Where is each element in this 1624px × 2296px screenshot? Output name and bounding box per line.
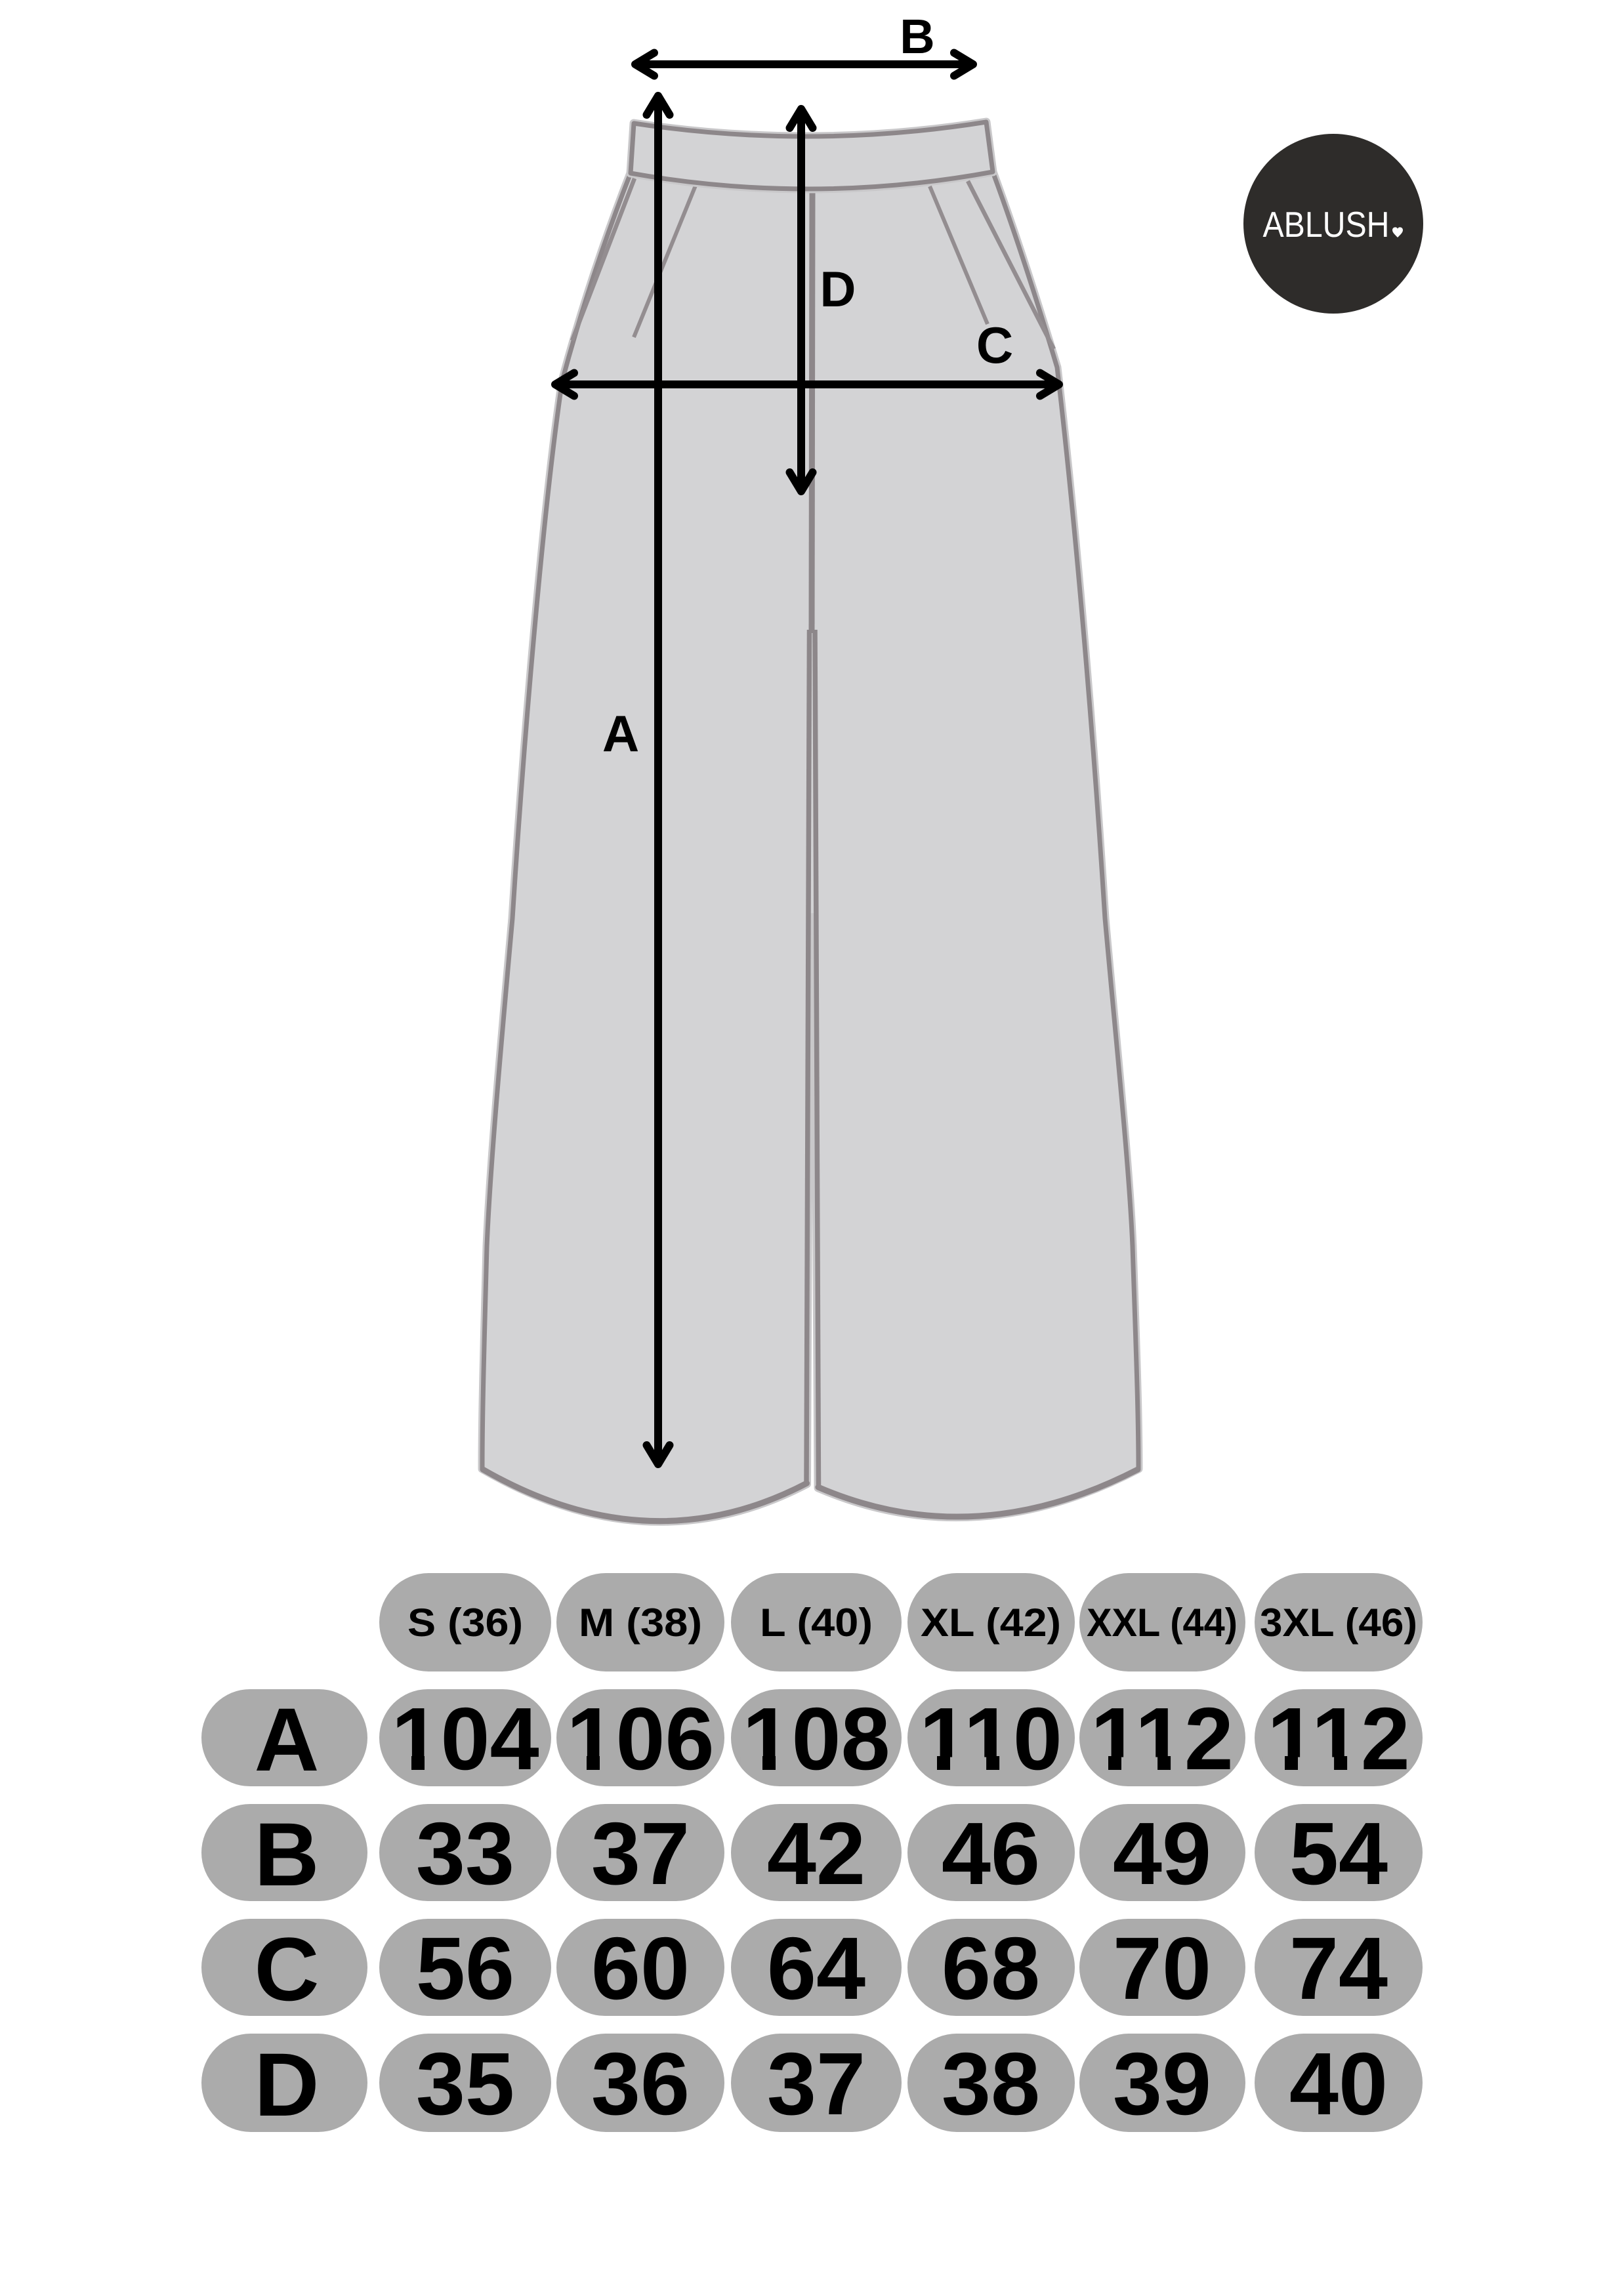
- svg-text:110: 110: [919, 1689, 1062, 1788]
- svg-text:56: 56: [416, 1919, 514, 2018]
- svg-text:L (40): L (40): [760, 1601, 873, 1645]
- svg-text:33: 33: [416, 1804, 514, 1903]
- svg-text:B: B: [900, 9, 934, 64]
- svg-text:36: 36: [591, 2034, 690, 2133]
- svg-text:64: 64: [767, 1919, 865, 2018]
- svg-text:39: 39: [1113, 2034, 1211, 2133]
- svg-text:106: 106: [566, 1689, 714, 1788]
- svg-text:D: D: [255, 2035, 320, 2135]
- svg-text:60: 60: [591, 1919, 690, 2018]
- svg-text:A: A: [602, 705, 639, 762]
- svg-text:38: 38: [942, 2034, 1040, 2133]
- svg-text:46: 46: [942, 1804, 1040, 1903]
- svg-text:M (38): M (38): [579, 1601, 702, 1645]
- svg-text:40: 40: [1289, 2034, 1388, 2133]
- svg-text:3XL (46): 3XL (46): [1260, 1601, 1417, 1645]
- svg-text:42: 42: [767, 1804, 865, 1903]
- svg-text:D: D: [820, 262, 856, 318]
- svg-text:XL (42): XL (42): [921, 1601, 1061, 1645]
- svg-text:XXL (44): XXL (44): [1087, 1601, 1238, 1645]
- svg-text:70: 70: [1113, 1919, 1211, 2018]
- svg-text:A: A: [255, 1690, 320, 1790]
- svg-text:54: 54: [1289, 1804, 1388, 1903]
- svg-text:49: 49: [1113, 1804, 1211, 1903]
- svg-text:112: 112: [1091, 1689, 1234, 1788]
- svg-text:68: 68: [942, 1919, 1040, 2018]
- svg-text:B: B: [255, 1805, 320, 1905]
- svg-text:ABLUSH: ABLUSH: [1263, 204, 1390, 245]
- svg-text:35: 35: [416, 2034, 514, 2133]
- svg-text:112: 112: [1267, 1689, 1410, 1788]
- svg-text:C: C: [976, 316, 1013, 374]
- svg-text:74: 74: [1289, 1919, 1388, 2018]
- svg-text:C: C: [255, 1919, 320, 2020]
- svg-text:108: 108: [742, 1689, 890, 1788]
- svg-text:37: 37: [591, 1804, 690, 1903]
- svg-text:104: 104: [391, 1689, 539, 1788]
- svg-text:S (36): S (36): [407, 1601, 523, 1645]
- svg-text:37: 37: [767, 2034, 865, 2133]
